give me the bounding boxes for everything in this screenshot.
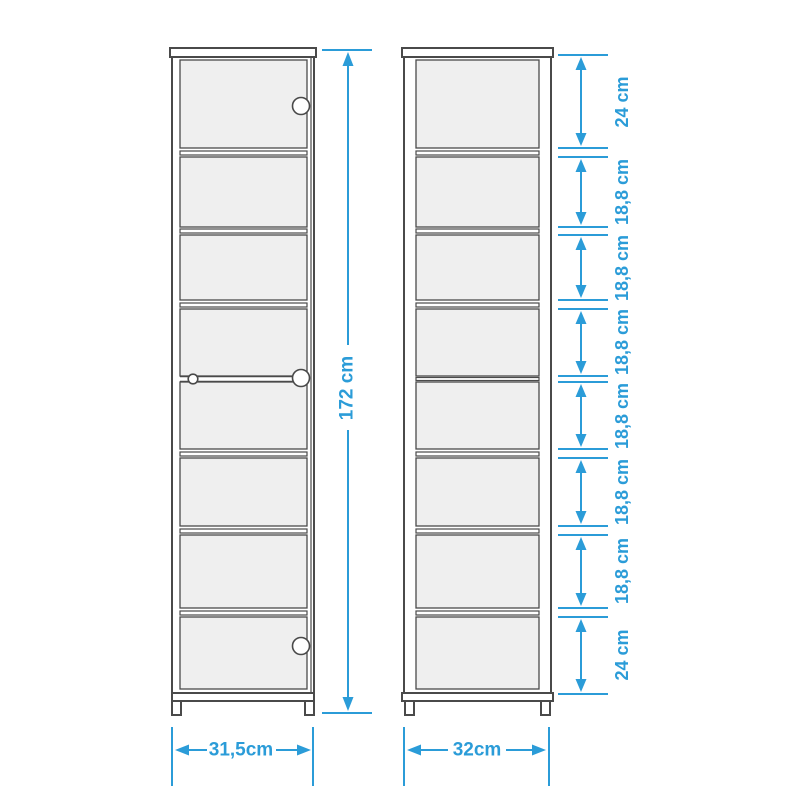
door-panel [180, 235, 307, 300]
shelf-compartment [416, 617, 539, 689]
height-dimension-label: 172 cm [337, 356, 358, 420]
segment-label: 18,8 cm [612, 159, 632, 225]
shelf-edge [180, 303, 307, 307]
door-panel [180, 60, 307, 148]
shelf-board [416, 611, 539, 615]
segment-label: 18,8 cm [612, 459, 632, 525]
door-panel [180, 535, 307, 608]
shelf-board [416, 151, 539, 155]
left-cabinet [170, 48, 316, 715]
shelf-board [416, 529, 539, 533]
left-cabinet-leg [172, 701, 181, 715]
door-panel [180, 309, 307, 376]
shelf-edge [180, 452, 307, 456]
shelf-edge [180, 611, 307, 615]
shelf-edge [180, 529, 307, 533]
door-panel [180, 617, 307, 689]
segment-label: 24 cm [612, 76, 632, 127]
door-panel [180, 382, 307, 449]
right-cabinet-leg [541, 701, 550, 715]
shelf-edge [180, 151, 307, 155]
shelf-compartment [416, 309, 539, 376]
background [0, 0, 800, 800]
shelf-compartment [416, 157, 539, 227]
segment-label: 18,8 cm [612, 309, 632, 375]
shelf-compartment [416, 382, 539, 449]
right-cabinet-leg [405, 701, 414, 715]
left-cabinet-base-rail [172, 693, 314, 701]
door-knob-icon [293, 370, 310, 387]
segment-label: 18,8 cm [612, 235, 632, 301]
shelf-compartment [416, 60, 539, 148]
left-cabinet-leg [305, 701, 314, 715]
handle-end-icon [188, 374, 198, 384]
shelf-board [416, 229, 539, 233]
left-width-label: 31,5cm [209, 740, 273, 761]
shelf-board [416, 378, 539, 381]
shelf-edge [180, 229, 307, 233]
right-cabinet-top-board [402, 48, 553, 57]
shelf-board [416, 303, 539, 307]
shelf-compartment [416, 535, 539, 608]
door-panel [180, 157, 307, 227]
segment-label: 24 cm [612, 629, 632, 680]
segment-label: 18,8 cm [612, 538, 632, 604]
segment-label: 18,8 cm [612, 383, 632, 449]
left-cabinet-top-board [170, 48, 316, 57]
shelf-compartment [416, 235, 539, 300]
door-panel [180, 458, 307, 526]
furniture-dimension-diagram: 172 cm 24 cm [0, 0, 800, 800]
shelf-compartment [416, 458, 539, 526]
door-knob-icon [293, 98, 310, 115]
diagram-canvas: 172 cm 24 cm [0, 0, 800, 800]
door-knob-icon [293, 638, 310, 655]
right-cabinet-base-board [402, 693, 553, 701]
right-cabinet [402, 48, 553, 715]
shelf-board [416, 452, 539, 456]
right-width-label: 32cm [453, 740, 502, 761]
